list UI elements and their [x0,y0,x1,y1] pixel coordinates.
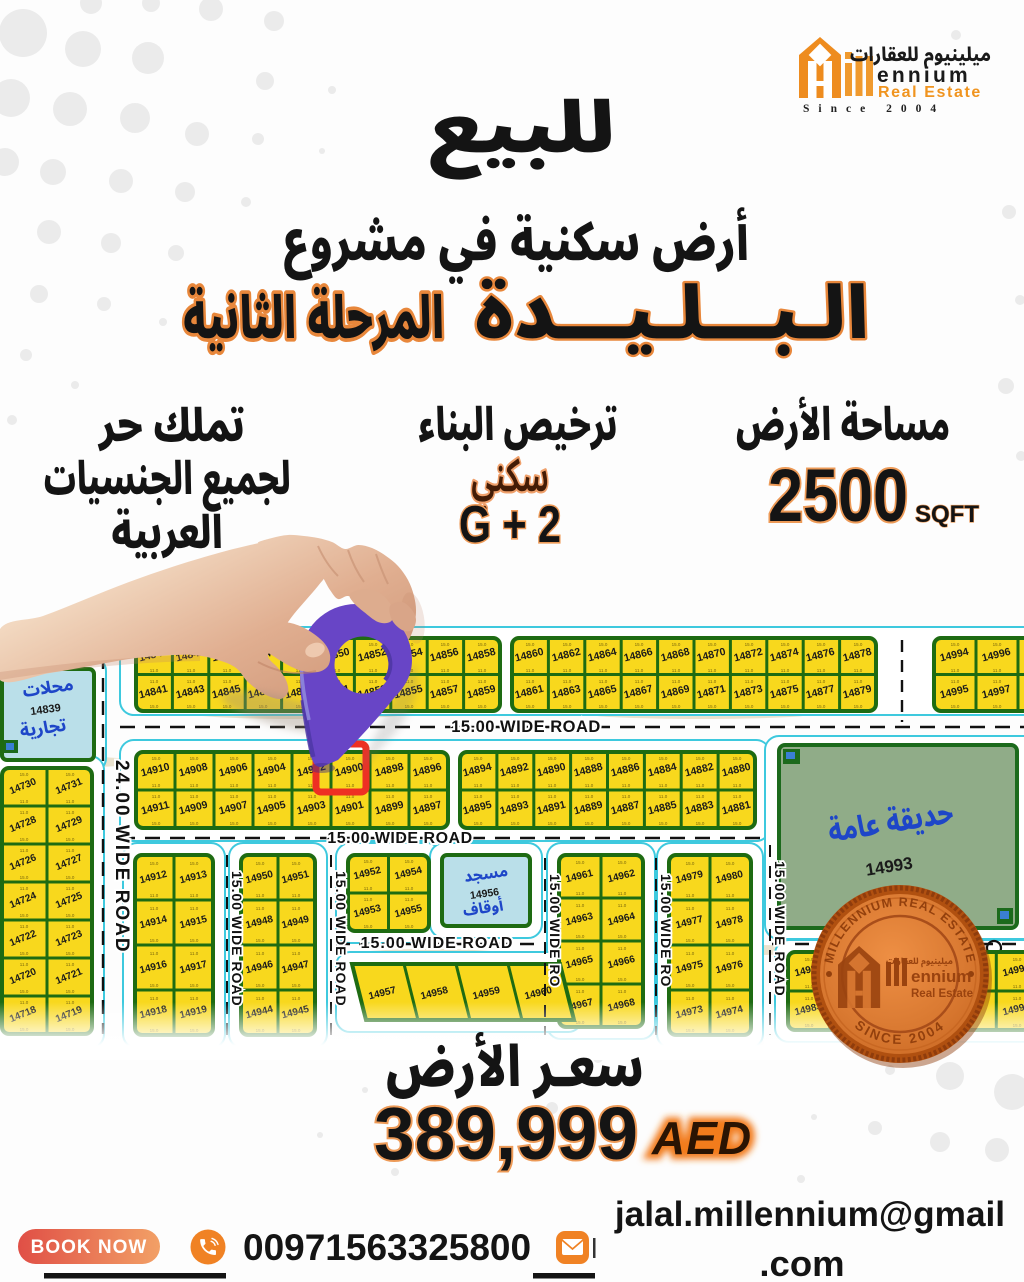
svg-text:15.0: 15.0 [563,642,572,647]
svg-text:11.0: 11.0 [190,951,199,956]
svg-text:15.0: 15.0 [190,983,199,988]
svg-text:15.0: 15.0 [781,704,790,709]
svg-text:15.0: 15.0 [66,875,75,880]
svg-text:11.0: 11.0 [190,783,199,788]
svg-text:15.0: 15.0 [659,756,668,761]
svg-text:11.0: 11.0 [386,783,395,788]
svg-text:15.0: 15.0 [256,983,265,988]
svg-text:15.0: 15.0 [951,642,960,647]
svg-text:15.0: 15.0 [424,821,433,826]
svg-text:11.0: 11.0 [548,794,557,799]
svg-text:15.0: 15.0 [66,772,75,777]
svg-text:15.0: 15.0 [441,704,450,709]
svg-text:15.0: 15.0 [511,756,520,761]
svg-text:BOOK NOW: BOOK NOW [31,1237,148,1258]
svg-text:389,999: 389,999 [374,1092,638,1175]
svg-text:15.0: 15.0 [152,821,161,826]
svg-text:11.0: 11.0 [585,794,594,799]
svg-text:15.0: 15.0 [292,861,301,866]
svg-text:15.0: 15.0 [659,821,668,826]
svg-text:11.0: 11.0 [20,810,29,815]
svg-text:15.0: 15.0 [190,938,199,943]
svg-text:11.0: 11.0 [292,951,301,956]
svg-text:11.0: 11.0 [635,668,644,673]
svg-text:11.0: 11.0 [726,893,735,898]
svg-text:11.0: 11.0 [441,668,450,673]
svg-text:11.0: 11.0 [672,679,681,684]
svg-text:11.0: 11.0 [635,679,644,684]
svg-text:15.0: 15.0 [364,924,373,929]
svg-text:15.0: 15.0 [622,756,631,761]
svg-text:15.0: 15.0 [292,983,301,988]
svg-text:15.0: 15.0 [386,821,395,826]
svg-text:15.0: 15.0 [563,704,572,709]
svg-text:11.0: 11.0 [424,794,433,799]
svg-text:15.0: 15.0 [66,837,75,842]
svg-text:11.0: 11.0 [268,783,277,788]
svg-text:11.0: 11.0 [256,996,265,1001]
svg-text:15.0: 15.0 [478,704,487,709]
svg-text:11.0: 11.0 [618,891,627,896]
svg-text:15.0: 15.0 [854,704,863,709]
svg-text:15.0: 15.0 [672,704,681,709]
svg-text:11.0: 11.0 [405,886,414,891]
svg-text:11.0: 11.0 [230,794,239,799]
svg-text:11.0: 11.0 [386,794,395,799]
svg-text:11.0: 11.0 [66,810,75,815]
svg-text:11.0: 11.0 [150,906,159,911]
svg-text:11.0: 11.0 [223,668,232,673]
svg-text:11.0: 11.0 [187,679,196,684]
svg-text:11.0: 11.0 [66,924,75,929]
svg-text:15.0: 15.0 [726,861,735,866]
svg-text:15.0: 15.0 [576,934,585,939]
svg-text:15.0: 15.0 [696,821,705,826]
svg-text:11.0: 11.0 [733,783,742,788]
svg-text:11.0: 11.0 [150,668,159,673]
svg-text:11.0: 11.0 [1013,996,1022,1001]
svg-text:11.0: 11.0 [308,794,317,799]
svg-text:11.0: 11.0 [993,679,1002,684]
svg-text:11.0: 11.0 [622,794,631,799]
svg-text:11.0: 11.0 [20,848,29,853]
svg-text:15.00 WIDE ROAD: 15.00 WIDE ROAD [333,871,349,1007]
svg-text:11.0: 11.0 [292,906,301,911]
svg-text:15.0: 15.0 [576,977,585,982]
svg-text:11.0: 11.0 [817,668,826,673]
svg-text:15.0: 15.0 [20,837,29,842]
svg-text:11.0: 11.0 [256,906,265,911]
svg-text:11.0: 11.0 [346,783,355,788]
svg-text:15.0: 15.0 [20,951,29,956]
svg-text:15.0: 15.0 [781,642,790,647]
svg-text:15.0: 15.0 [187,704,196,709]
svg-text:11.0: 11.0 [672,668,681,673]
svg-text:11.0: 11.0 [187,668,196,673]
svg-text:15.0: 15.0 [424,756,433,761]
svg-text:11.0: 11.0 [268,794,277,799]
svg-text:G + 2: G + 2 [459,496,561,554]
svg-text:15.0: 15.0 [386,756,395,761]
svg-text:15.0: 15.0 [696,756,705,761]
svg-text:11.0: 11.0 [66,848,75,853]
svg-text:Since 2004: Since 2004 [803,103,945,115]
svg-text:11.0: 11.0 [526,679,535,684]
svg-text:11.0: 11.0 [478,679,487,684]
svg-text:15.0: 15.0 [548,821,557,826]
svg-text:15.0: 15.0 [526,642,535,647]
svg-text:11.0: 11.0 [190,906,199,911]
svg-text:15.0: 15.0 [152,756,161,761]
svg-text:11.0: 11.0 [708,668,717,673]
svg-text:15.0: 15.0 [618,860,627,865]
svg-text:15.0: 15.0 [256,938,265,943]
svg-text:11.0: 11.0 [576,891,585,896]
svg-text:11.0: 11.0 [150,951,159,956]
svg-text:11.0: 11.0 [66,962,75,967]
svg-text:15.0: 15.0 [66,989,75,994]
svg-text:15.0: 15.0 [745,642,754,647]
svg-text:15.0: 15.0 [733,756,742,761]
svg-text:11.0: 11.0 [150,679,159,684]
svg-text:15.0: 15.0 [726,983,735,988]
svg-text:15.0: 15.0 [618,934,627,939]
svg-text:11.0: 11.0 [441,679,450,684]
svg-text:15.0: 15.0 [478,642,487,647]
svg-text:15.0: 15.0 [733,821,742,826]
svg-text:11.0: 11.0 [576,989,585,994]
svg-text:15.0: 15.0 [405,859,414,864]
svg-text:15.0: 15.0 [66,913,75,918]
svg-text:15.0: 15.0 [346,756,355,761]
svg-text:11.0: 11.0 [817,679,826,684]
svg-text:15.0: 15.0 [635,642,644,647]
svg-text:11.0: 11.0 [599,668,608,673]
svg-text:15.0: 15.0 [618,977,627,982]
svg-text:15.0: 15.0 [150,983,159,988]
svg-text:15.0: 15.0 [20,913,29,918]
svg-text:11.0: 11.0 [256,893,265,898]
svg-text:15.0: 15.0 [708,704,717,709]
svg-text:11.0: 11.0 [474,794,483,799]
svg-text:15.00 WIDE RO: 15.00 WIDE RO [547,874,563,987]
svg-text:11.0: 11.0 [618,989,627,994]
svg-text:11.0: 11.0 [1013,984,1022,989]
svg-text:11.0: 11.0 [223,679,232,684]
svg-text:11.0: 11.0 [256,951,265,956]
svg-text:15.0: 15.0 [511,821,520,826]
svg-text:11.0: 11.0 [686,996,695,1001]
svg-text:15.00 WIDE ROAD: 15.00 WIDE ROAD [229,871,245,1007]
svg-text:15.0: 15.0 [686,861,695,866]
svg-text:11.0: 11.0 [805,996,814,1001]
svg-text:2500: 2500 [768,454,908,537]
svg-text:15.00 WIDE ROAD: 15.00 WIDE ROAD [451,718,601,736]
svg-text:11.0: 11.0 [854,668,863,673]
svg-text:11.0: 11.0 [66,886,75,891]
svg-text:15.0: 15.0 [369,642,378,647]
svg-text:11.0: 11.0 [951,668,960,673]
svg-text:11.0: 11.0 [364,886,373,891]
svg-text:Real Estate: Real Estate [878,84,982,101]
svg-text:11.0: 11.0 [478,668,487,673]
svg-text:15.0: 15.0 [20,989,29,994]
svg-text:11.0: 11.0 [66,799,75,804]
svg-text:11.0: 11.0 [733,794,742,799]
svg-text:Real Estate: Real Estate [911,988,973,1000]
svg-text:11.0: 11.0 [659,794,668,799]
svg-text:11.0: 11.0 [405,897,414,902]
svg-text:11.0: 11.0 [781,668,790,673]
svg-text:15.0: 15.0 [308,821,317,826]
svg-text:15.0: 15.0 [292,938,301,943]
svg-text:11.0: 11.0 [511,783,520,788]
svg-text:jalal.millennium@gmail: jalal.millennium@gmail [614,1195,1005,1234]
svg-text:15.0: 15.0 [951,704,960,709]
svg-text:11.0: 11.0 [20,924,29,929]
svg-text:15.0: 15.0 [230,756,239,761]
svg-text:11.0: 11.0 [230,783,239,788]
svg-text:15.0: 15.0 [993,642,1002,647]
svg-text:15.0: 15.0 [585,756,594,761]
svg-text:15.0: 15.0 [686,938,695,943]
svg-text:11.0: 11.0 [726,951,735,956]
svg-text:15.0: 15.0 [635,704,644,709]
svg-text:15.0: 15.0 [268,821,277,826]
svg-text:11.0: 11.0 [585,783,594,788]
svg-text:15.0: 15.0 [364,859,373,864]
svg-text:15.0: 15.0 [474,821,483,826]
svg-text:11.0: 11.0 [576,903,585,908]
svg-text:11.0: 11.0 [686,951,695,956]
svg-text:11.0: 11.0 [659,783,668,788]
svg-text:15.0: 15.0 [405,924,414,929]
svg-text:11.0: 11.0 [292,996,301,1001]
svg-text:11.0: 11.0 [190,893,199,898]
svg-text:11.0: 11.0 [618,903,627,908]
svg-text:11.0: 11.0 [548,783,557,788]
svg-text:15.0: 15.0 [585,821,594,826]
svg-text:11.0: 11.0 [781,679,790,684]
svg-text:15.0: 15.0 [190,861,199,866]
svg-text:24.00 WIDE ROAD: 24.00 WIDE ROAD [111,760,132,954]
svg-text:15.0: 15.0 [474,756,483,761]
svg-text:15.0: 15.0 [854,642,863,647]
svg-text:11.0: 11.0 [152,783,161,788]
svg-text:15.0: 15.0 [256,861,265,866]
svg-text:15.0: 15.0 [268,756,277,761]
svg-text:11.0: 11.0 [686,906,695,911]
svg-text:11.0: 11.0 [20,799,29,804]
svg-text:15.0: 15.0 [993,704,1002,709]
svg-text:11.0: 11.0 [696,783,705,788]
svg-text:11.0: 11.0 [526,668,535,673]
svg-text:15.0: 15.0 [686,983,695,988]
svg-text:11.0: 11.0 [511,794,520,799]
svg-text:11.0: 11.0 [292,893,301,898]
svg-text:15.0: 15.0 [599,642,608,647]
svg-text:11.0: 11.0 [150,996,159,1001]
svg-text:11.0: 11.0 [599,679,608,684]
svg-text:11.0: 11.0 [951,679,960,684]
svg-text:11.0: 11.0 [696,794,705,799]
svg-text:11.0: 11.0 [563,668,572,673]
svg-text:00971563325800: 00971563325800 [243,1227,531,1268]
svg-text:15.00 WIDE ROAD: 15.00 WIDE ROAD [327,830,472,847]
svg-text:SQFT: SQFT [915,501,979,528]
svg-text:11.0: 11.0 [563,679,572,684]
svg-text:11.0: 11.0 [150,893,159,898]
svg-text:15.0: 15.0 [230,821,239,826]
svg-text:11.0: 11.0 [576,946,585,951]
svg-text:15.0: 15.0 [576,860,585,865]
svg-text:11.0: 11.0 [708,679,717,684]
svg-text:ennium: ennium [911,967,971,986]
svg-text:11.0: 11.0 [190,794,199,799]
svg-text:15.0: 15.0 [817,704,826,709]
svg-text:15.0: 15.0 [745,704,754,709]
svg-text:15.0: 15.0 [190,756,199,761]
svg-text:11.0: 11.0 [20,886,29,891]
svg-text:11.0: 11.0 [726,996,735,1001]
svg-text:15.0: 15.0 [346,821,355,826]
svg-text:11.0: 11.0 [190,996,199,1001]
svg-text:15.0: 15.0 [150,704,159,709]
svg-text:15.0: 15.0 [708,642,717,647]
svg-text:11.0: 11.0 [745,668,754,673]
svg-text:11.0: 11.0 [369,679,378,684]
svg-text:11.0: 11.0 [854,679,863,684]
svg-text:11.0: 11.0 [993,668,1002,673]
svg-text:15.0: 15.0 [20,875,29,880]
svg-text:15.00 WIDE ROAD: 15.00 WIDE ROAD [772,861,788,997]
svg-text:15.0: 15.0 [622,821,631,826]
svg-text:15.0: 15.0 [190,821,199,826]
svg-text:AED: AED [651,1112,752,1164]
svg-text:15.0: 15.0 [672,642,681,647]
svg-text:15.0: 15.0 [817,642,826,647]
svg-text:11.0: 11.0 [424,783,433,788]
svg-text:11.0: 11.0 [745,679,754,684]
svg-text:11.0: 11.0 [686,893,695,898]
svg-text:15.0: 15.0 [726,938,735,943]
svg-text:15.0: 15.0 [1013,957,1022,962]
svg-text:15.0: 15.0 [66,951,75,956]
svg-text:15.0: 15.0 [599,704,608,709]
svg-text:15.0: 15.0 [526,704,535,709]
svg-text:15.00 WIDE ROAD: 15.00 WIDE ROAD [361,935,514,952]
svg-text:15.0: 15.0 [150,861,159,866]
svg-text:15.0: 15.0 [548,756,557,761]
svg-text:11.0: 11.0 [152,794,161,799]
svg-text:11.0: 11.0 [622,783,631,788]
svg-text:15.0: 15.0 [150,938,159,943]
svg-text:11.0: 11.0 [474,783,483,788]
svg-text:15.0: 15.0 [20,772,29,777]
svg-text:11.0: 11.0 [726,906,735,911]
svg-text:11.0: 11.0 [369,668,378,673]
svg-text:15.00 WIDE RO: 15.00 WIDE RO [658,874,674,987]
svg-text:15.0: 15.0 [441,642,450,647]
svg-text:.com: .com [759,1243,844,1282]
svg-text:11.0: 11.0 [20,962,29,967]
svg-text:11.0: 11.0 [364,897,373,902]
svg-text:11.0: 11.0 [618,946,627,951]
